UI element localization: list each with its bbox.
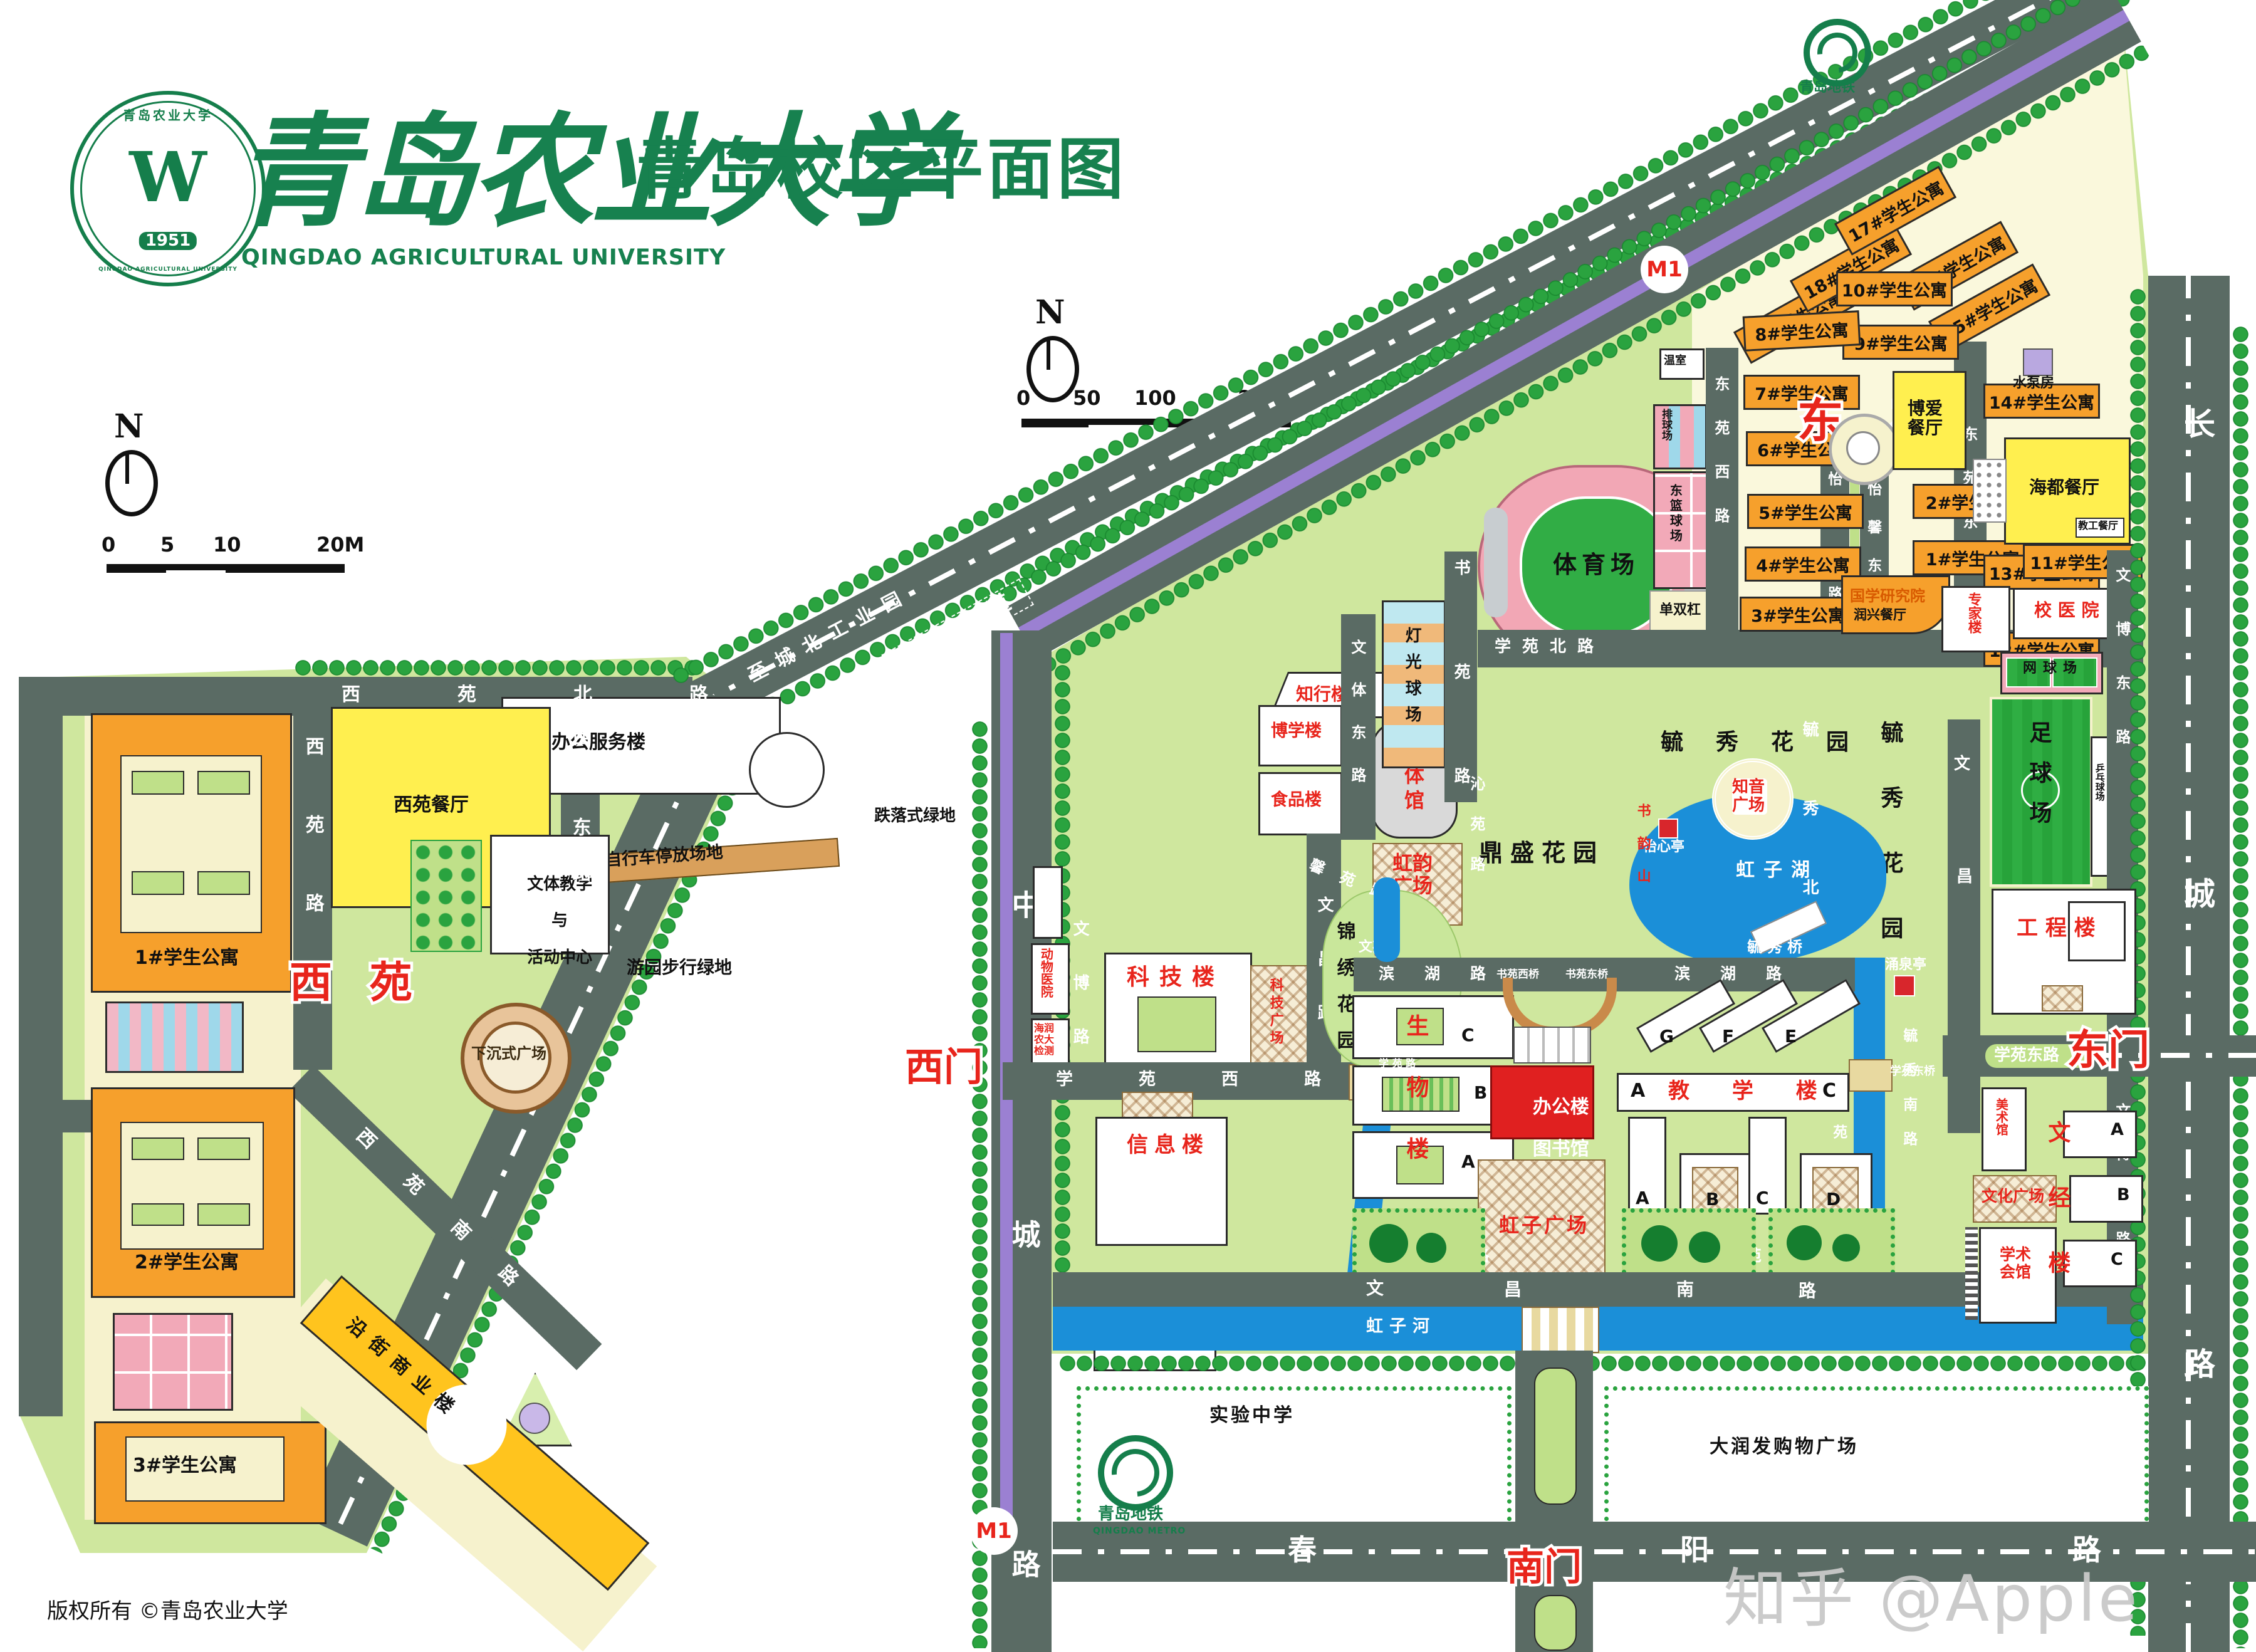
- dorm-5: 5#学生公寓: [1747, 494, 1864, 529]
- dorm2-strip-4: [197, 1203, 250, 1226]
- university-en: QINGDAO AGRICULTURAL UNIVERSITY: [241, 246, 726, 270]
- dorm-3: 3#学生公寓: [1740, 597, 1856, 632]
- boxue-label: 博学楼: [1271, 722, 1322, 741]
- shiyan-label: 实验中学: [1209, 1405, 1295, 1426]
- park2-tree-b: [1689, 1231, 1720, 1263]
- gongcheng-label: 工 程 楼: [2017, 916, 2096, 940]
- xinxi-plaza: [1122, 1092, 1193, 1119]
- park3-tree-a: [1787, 1225, 1822, 1260]
- metro-logo-top-cn: 青岛地铁: [1800, 80, 1855, 96]
- shengwu-label: 生物楼: [1402, 1014, 1428, 1198]
- river-label: 虹子河: [1366, 1317, 1436, 1336]
- shengwu-letter-c: C: [1461, 1025, 1475, 1045]
- yongquan-label: 涌泉亭: [1885, 958, 1926, 973]
- scale-west-20m: 20M: [316, 534, 364, 557]
- river-south-treeline: [1059, 1355, 2137, 1372]
- boai-label: 博爱餐厅: [1906, 399, 1944, 438]
- m1-top-text: M1: [1646, 257, 1683, 282]
- dorm1-strip-1: [132, 771, 184, 795]
- runxing-label: 润兴餐厅: [1854, 608, 1906, 623]
- dorm2-strip-3: [132, 1203, 184, 1226]
- shengwu-letter-b: B: [1474, 1083, 1487, 1102]
- wenjing-block-a: [2063, 1111, 2137, 1158]
- jiaoxue-header-c: C: [1822, 1080, 1836, 1102]
- zhuanjia-label: 专家楼: [1965, 592, 1981, 634]
- xueyuan-dong-bridge: [1849, 1059, 1893, 1092]
- road-label-binhu-e: 滨湖路: [1674, 965, 1812, 983]
- dorm-4-label: 4#学生公寓: [1756, 552, 1849, 577]
- road-west-edge: [19, 677, 63, 1416]
- metro-logo-bottom-cn: 青岛地铁: [1098, 1505, 1163, 1524]
- road-label-xueyuan-dong: 学苑东路: [1994, 1047, 2059, 1065]
- dorm-10: 10#学生公寓: [1836, 271, 1953, 306]
- wenjing-label: 文经楼: [2044, 1121, 2069, 1316]
- xiyuan-canteen-label: 西苑餐厅: [394, 795, 469, 816]
- road-label-xiyuan-north: 西苑北路: [342, 684, 805, 706]
- wenjing-block-b: [2069, 1175, 2143, 1223]
- road-label-wenbo-dong-up: 文博东路: [2113, 567, 2130, 783]
- dengguang-label: 灯光球场: [1402, 627, 1421, 732]
- road-label-xiyuan-east: 西苑东路: [569, 727, 590, 907]
- m1-bottom-text: M1: [976, 1519, 1012, 1544]
- park2-tree-a: [1641, 1225, 1678, 1262]
- scale-west-5: 5: [160, 534, 174, 557]
- walk-green-label: 游园步行绿地: [627, 958, 732, 977]
- drop-green-label: 跌落式绿地: [874, 807, 956, 825]
- keji-label: 科技楼: [1127, 965, 1225, 990]
- dorm-9-label: 9#学生公寓: [1854, 330, 1947, 355]
- road-label-xueyuan-bei: 学苑北路: [1495, 638, 1605, 656]
- campus-map: 青岛农业大学 W 1951 QINGDAO AGRICULTURAL UNIVE…: [0, 0, 2256, 1652]
- scale-bar-west: [107, 564, 345, 573]
- road-label-wenti-dong: 文体东路: [1349, 639, 1366, 810]
- bridge-label-yuxiu: 毓秀桥: [1747, 939, 1807, 956]
- copyright: 版权所有 ©青岛农业大学: [47, 1599, 288, 1623]
- jiaoxue-letter-b2: B: [1706, 1189, 1719, 1209]
- park1-tree-b: [1416, 1233, 1446, 1263]
- pump-house-label: 水泵房: [2013, 376, 2054, 392]
- meishuguan-label: 美术馆: [1994, 1098, 2008, 1136]
- gongcheng-plaza: [2042, 985, 2083, 1012]
- jiaoxue-header-a: A: [1631, 1080, 1645, 1102]
- compass-n-west: N: [114, 409, 144, 445]
- road-label-xueyuan-lane: 学 苑 路: [1379, 1058, 1416, 1069]
- sunken-plaza-label: 下沉式广场: [471, 1045, 546, 1062]
- zhiyin-label: 知音广场: [1732, 778, 1767, 815]
- shuyunshan-label: 书韵山: [1634, 803, 1650, 901]
- west-dorm3-label: 3#学生公寓: [133, 1455, 237, 1477]
- wenchang-row-3: 南: [1676, 1280, 1694, 1299]
- scale-west-10: 10: [213, 534, 241, 557]
- jiaoxue-letter-c2: C: [1756, 1188, 1769, 1208]
- metro-logo-bottom-en: QINGDAO METRO: [1093, 1527, 1186, 1537]
- greenhouse-label: 温室: [1664, 355, 1686, 367]
- scale-main-0: 0: [1016, 387, 1030, 410]
- compass-icon-main: [1026, 336, 1079, 402]
- watermark: 知乎 @Apple: [1723, 1564, 2140, 1635]
- wenchang-row-1: 文: [1366, 1278, 1384, 1298]
- hospital-label: 校 医 院: [2034, 600, 2099, 620]
- activity-line3: 活动中心: [527, 948, 592, 967]
- west-gate-label: 西门: [905, 1035, 983, 1092]
- road-label-binhu-w: 滨湖路: [1379, 965, 1516, 983]
- admin-line1: 办公楼: [1533, 1096, 1589, 1118]
- office-service-round: [749, 732, 825, 808]
- scale-west-0: 0: [102, 534, 115, 557]
- wenjing-block-c: [2063, 1240, 2137, 1287]
- east-gate-label: 东门: [2067, 1017, 2149, 1077]
- south-axis-median-s: [1534, 1595, 1577, 1651]
- jiaoxue-letter-d2: D: [1826, 1189, 1841, 1209]
- seal-mark: W: [129, 139, 207, 216]
- stadium-stand-w: [1484, 508, 1508, 617]
- park3-tree-b: [1832, 1234, 1860, 1262]
- dingsheng-label: 鼎盛花园: [1479, 840, 1604, 867]
- haijian-label: 海润农大检测: [1034, 1023, 1063, 1057]
- hongzi-plaza-label: 虹子广场: [1499, 1215, 1589, 1237]
- road-label-wenbo: 文博路: [1070, 920, 1089, 1082]
- treeline-xiyuan-north: [295, 659, 696, 676]
- pingpang-label: 乒乓球场: [2094, 763, 2105, 801]
- wenjing-letter-c: C: [2111, 1250, 2123, 1269]
- tree-plot: [410, 840, 482, 952]
- shengwu-letter-a: A: [1461, 1152, 1475, 1171]
- activity-line2: 与: [551, 911, 568, 930]
- haidu-label: 海都餐厅: [2029, 478, 2099, 497]
- triangle-plaza-circle: [519, 1403, 550, 1434]
- wenchang-dong-char-1: 文: [1954, 755, 1970, 773]
- donglan-label: 东篮球场: [1668, 484, 1682, 544]
- danshuang-label: 单双杠: [1659, 603, 1701, 619]
- metro-logo-icon-bottom: [1098, 1435, 1173, 1510]
- jiaoxue-header-label: 教 学 楼: [1668, 1079, 1835, 1103]
- east-roundabout-inner: [1846, 431, 1880, 465]
- xinxi-label: 信息楼: [1127, 1133, 1209, 1157]
- compass-icon-west: [105, 450, 158, 516]
- wenchang-dong-char-2: 昌: [1956, 868, 1973, 886]
- seal-year: 1951: [139, 232, 197, 250]
- stream-upper: [1374, 877, 1400, 962]
- dorm-10-label: 10#学生公寓: [1842, 277, 1947, 301]
- compass-needle-west: [125, 452, 129, 484]
- bath-house: [105, 1001, 244, 1073]
- wenchang-row-2: 昌: [1504, 1280, 1522, 1299]
- jiaoxue-letter-g: G: [1659, 1027, 1674, 1046]
- west-dorm1-label: 1#学生公寓: [135, 948, 239, 969]
- jiaoxue-letter-a2: A: [1636, 1188, 1649, 1208]
- jiaoxue-letter-e: E: [1785, 1027, 1797, 1046]
- metro-logo-icon-top: [1804, 19, 1871, 86]
- scale-main-100: 100: [1134, 387, 1176, 410]
- dorm-8-label: 8#学生公寓: [1754, 316, 1849, 346]
- dorm-8: 8#学生公寓: [1743, 310, 1861, 352]
- compass-needle-main: [1047, 338, 1050, 370]
- library-pillars: [1513, 1027, 1591, 1064]
- dorm2-strip-1: [132, 1137, 184, 1160]
- dorm-14-label: 14#学生公寓: [1989, 389, 2094, 414]
- road-label-changcheng: 长城路: [2180, 407, 2215, 1652]
- south-gate-label: 南门: [1507, 1537, 1582, 1591]
- wenjing-letter-a: A: [2111, 1121, 2124, 1139]
- road-label-qinyuan: 沁苑路: [1468, 776, 1485, 896]
- keji-plaza-label: 科技广场: [1267, 978, 1283, 1048]
- south-axis-median-n: [1534, 1367, 1577, 1505]
- honeycomb-plaza: [1973, 459, 2007, 523]
- guoxue-label: 国学研究院: [1850, 588, 1925, 605]
- road-label-shuyuan: 书苑路: [1451, 559, 1470, 871]
- map-title: 青岛校区平面图: [636, 133, 1127, 207]
- west-basketball-courts: [113, 1313, 233, 1411]
- dorm1-strip-3: [132, 871, 184, 895]
- jinxiu-label: 锦绣花园: [1334, 921, 1355, 1067]
- hongzi-bridge: [1522, 1307, 1599, 1353]
- yixin-pavilion-icon: [1658, 818, 1678, 839]
- yongquan-pavilion-icon: [1894, 975, 1915, 996]
- park1-tree-a: [1369, 1224, 1408, 1263]
- shipin-label: 食品楼: [1271, 791, 1322, 810]
- seal-ring-cn: 青岛农业大学: [123, 108, 213, 122]
- road-label-xueyuan-xi: 学苑西路: [1056, 1070, 1387, 1089]
- unnamed-slab: [1033, 866, 1063, 939]
- tennis-label: 网球场: [2023, 661, 2083, 677]
- metro-station-badge-top: M1: [1641, 246, 1688, 293]
- scale-bar-west-gap: [166, 567, 226, 576]
- dorm1-strip-2: [197, 771, 250, 795]
- dorm-5-label: 5#学生公寓: [1758, 499, 1852, 524]
- pump-house: [2023, 348, 2053, 376]
- yuxiu-north-label: 毓秀花园: [1661, 730, 1881, 755]
- wenjing-letter-b: B: [2117, 1186, 2130, 1205]
- guoxue-building: [1841, 575, 1950, 634]
- road-label-dongyuan-xi: 东苑西路: [1712, 376, 1729, 552]
- stadium-label: 体育场: [1553, 552, 1639, 578]
- football-label: 足球场: [2025, 721, 2050, 841]
- xueshu-hatch: [1965, 1227, 1978, 1320]
- office-service-label: 办公服务楼: [551, 732, 645, 753]
- seal-ring-en: QINGDAO AGRICULTURAL UNIVERSITY: [98, 266, 238, 273]
- xueshu-label: 学术会馆: [1998, 1246, 2033, 1281]
- wenchang-row-4: 路: [1799, 1281, 1816, 1300]
- dorm2-strip-2: [197, 1137, 250, 1160]
- jiaoxue-letter-f: F: [1722, 1027, 1734, 1046]
- metro-station-badge-bottom: M1: [970, 1507, 1018, 1555]
- dongwu-label: 动物医院: [1039, 948, 1053, 998]
- dorm-3-label: 3#学生公寓: [1751, 602, 1844, 627]
- wenhua-label: 文化广场: [1982, 1188, 2044, 1205]
- west-dorm2-label: 2#学生公寓: [135, 1252, 239, 1273]
- paiqiu-label: 排球场: [1659, 409, 1671, 441]
- road-label-yuxiu-nan: 毓秀南路: [1900, 1028, 1916, 1166]
- changcheng-treeline-e: [2232, 326, 2249, 1648]
- compass-n-main: N: [1035, 295, 1065, 331]
- darunfa-block: [1604, 1386, 2149, 1530]
- dorm1-strip-4: [197, 871, 250, 895]
- jiaogong-label: 教工餐厅: [2078, 520, 2118, 531]
- admin-line2: 图书馆: [1533, 1138, 1589, 1160]
- road-label-xiyuan-west: 西苑路: [302, 736, 323, 971]
- keji-court: [1137, 996, 1216, 1052]
- scale-main-50: 50: [1073, 387, 1101, 410]
- darunfa-label: 大润发购物广场: [1710, 1436, 1859, 1458]
